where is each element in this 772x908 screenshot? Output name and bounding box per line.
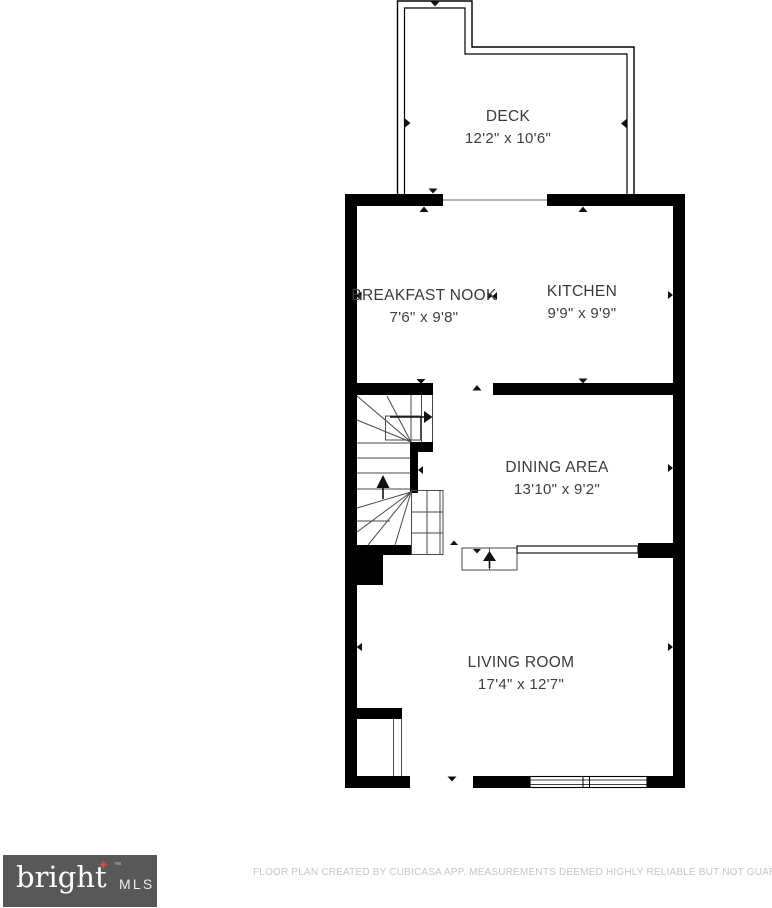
tick-kitchen-bottom-icon (579, 379, 588, 384)
dining-living-divider (450, 541, 638, 571)
room-label-living-room: LIVING ROOM 17'4" x 12'7" (468, 652, 575, 696)
room-label-kitchen: KITCHEN 9'9" x 9'9" (547, 281, 617, 325)
closet-opening (394, 719, 402, 776)
room-dimensions: 9'9" x 9'9" (547, 303, 617, 325)
disclaimer-text: FLOOR PLAN CREATED BY CUBICASA APP. MEAS… (253, 867, 772, 878)
stair-wall-tick-icon (418, 466, 423, 474)
stair-winder-line (387, 396, 411, 442)
stair-bottom-wall (345, 545, 412, 555)
kitchen-dining-wall (493, 383, 673, 395)
stair-winder-line (357, 396, 411, 442)
floorplan-drawing (0, 0, 772, 908)
room-dimensions: 13'10" x 9'2" (505, 479, 608, 501)
deck-walls (398, 1, 635, 194)
stair-upper-box (386, 416, 421, 440)
room-label-deck: DECK 12'2" x 10'6" (465, 106, 551, 150)
bottom-wall-left-segment (345, 776, 410, 788)
logo-wordmark: bright (16, 860, 107, 894)
deck-top-tick-icon (431, 2, 440, 7)
nook-dining-wall (345, 383, 433, 395)
closet-wall (356, 708, 402, 719)
deck-inner-wall (405, 8, 628, 194)
bottom-wall-right-segment (647, 776, 685, 788)
tick-kitchen-top-icon (579, 207, 588, 213)
stair-winder-line (357, 420, 411, 442)
room-name: DECK (465, 106, 551, 128)
logo-star-icon: ✦ (97, 856, 110, 874)
top-wall-left-segment (345, 194, 443, 206)
bottom-wall-mid-segment (473, 776, 530, 788)
room-label-breakfast-nook: BREAKFAST NOOK 7'6" x 9'8" (351, 285, 496, 329)
deck-bottom-tick-icon (429, 189, 438, 194)
room-dimensions: 7'6" x 9'8" (351, 307, 496, 329)
floorplan-page: DECK 12'2" x 10'6" BREAKFAST NOOK 7'6" x… (0, 0, 772, 908)
tick-kitchen-right-icon (668, 291, 673, 299)
right-exterior-wall (673, 194, 685, 788)
tick-nook-top-icon (420, 207, 429, 213)
dining-living-wall-stub (638, 543, 685, 558)
room-label-dining-area: DINING AREA 13'10" x 9'2" (505, 457, 608, 501)
deck-left-tick-icon (405, 119, 411, 128)
half-wall-railing (517, 546, 638, 553)
step-tick-icon (450, 541, 458, 546)
room-dimensions: 12'2" x 10'6" (465, 128, 551, 150)
stair-arrows (377, 411, 433, 499)
stair-corner-block (345, 555, 383, 585)
logo-trademark: ™ (114, 862, 121, 869)
living-room-window (530, 777, 647, 788)
stair-wall-stub (410, 442, 433, 452)
deck-outer-wall (398, 1, 635, 194)
window-frame (530, 777, 647, 788)
tick-entry-door-icon (448, 777, 457, 782)
room-name: LIVING ROOM (468, 652, 575, 674)
stair-middle-wall (410, 452, 418, 493)
tick-living-right-icon (668, 643, 673, 651)
top-wall-right-segment (547, 194, 685, 206)
room-name: KITCHEN (547, 281, 617, 303)
staircase (357, 395, 443, 555)
room-dimensions: 17'4" x 12'7" (468, 674, 575, 696)
deck-right-tick-icon (621, 119, 627, 128)
stair-up-arrow-head-icon (377, 475, 390, 488)
left-exterior-wall (345, 194, 357, 788)
stair-up-arrow-head-icon (424, 411, 433, 423)
room-name: DINING AREA (505, 457, 608, 479)
tick-dining-right-icon (668, 464, 673, 472)
tick-living-left-icon (357, 643, 363, 651)
brightmls-logo: bright ✦ ™ MLS (3, 855, 157, 907)
tick-dining-top-icon (473, 385, 482, 391)
room-name: BREAKFAST NOOK (351, 285, 496, 307)
logo-mls-text: MLS (119, 876, 154, 892)
stair-winder-line (395, 492, 411, 545)
stair-winder-line (357, 492, 411, 508)
